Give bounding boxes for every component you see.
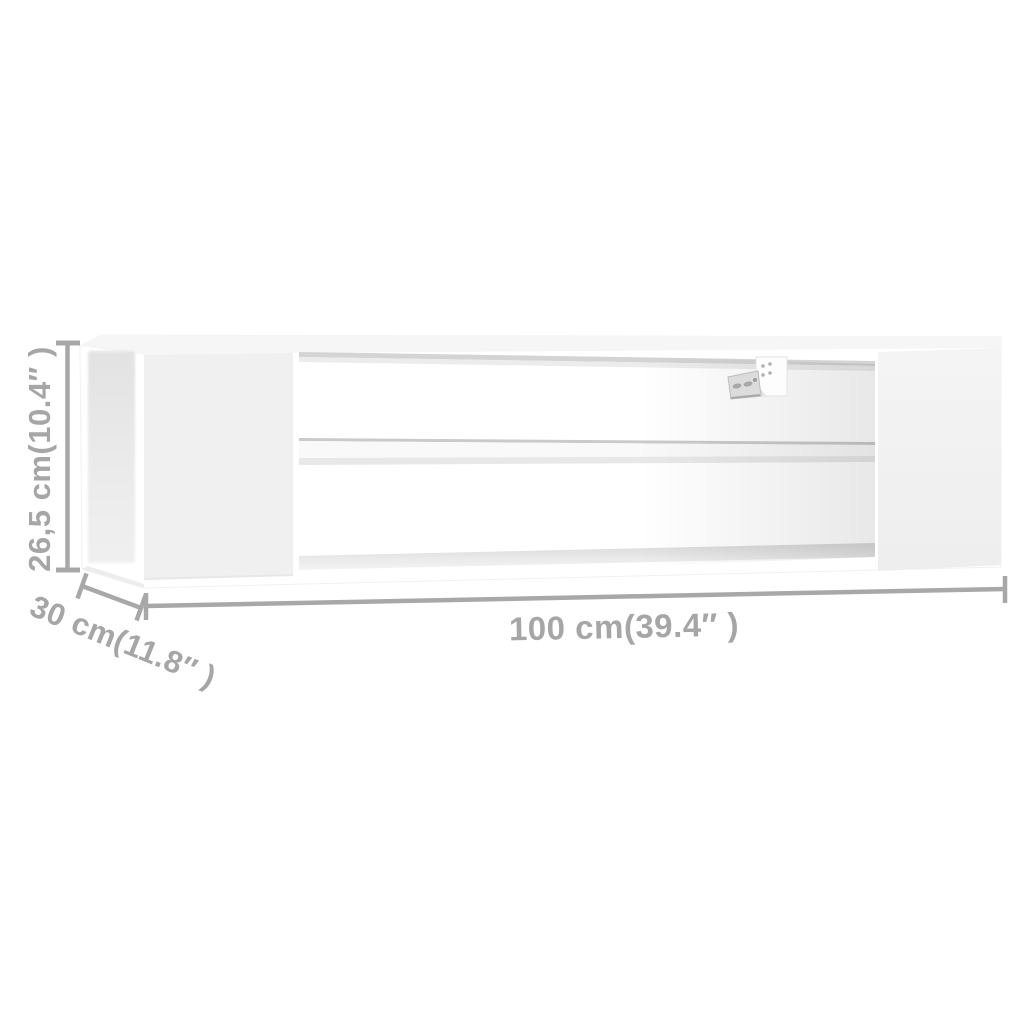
product-dimension-diagram: 26,5 cm(10.4″ ) 30 cm(11.8″ ) 100 cm(39.… bbox=[0, 0, 1024, 1024]
height-dimension-line bbox=[56, 343, 80, 570]
left-section-face bbox=[144, 353, 293, 580]
height-dimension-label: 26,5 cm(10.4″ ) bbox=[22, 346, 58, 572]
right-section-face bbox=[878, 348, 1001, 571]
tv-shelf-illustration bbox=[0, 0, 1024, 1024]
left-end-opening bbox=[88, 351, 135, 563]
width-dimension-label: 100 cm(39.4″ ) bbox=[509, 606, 740, 649]
